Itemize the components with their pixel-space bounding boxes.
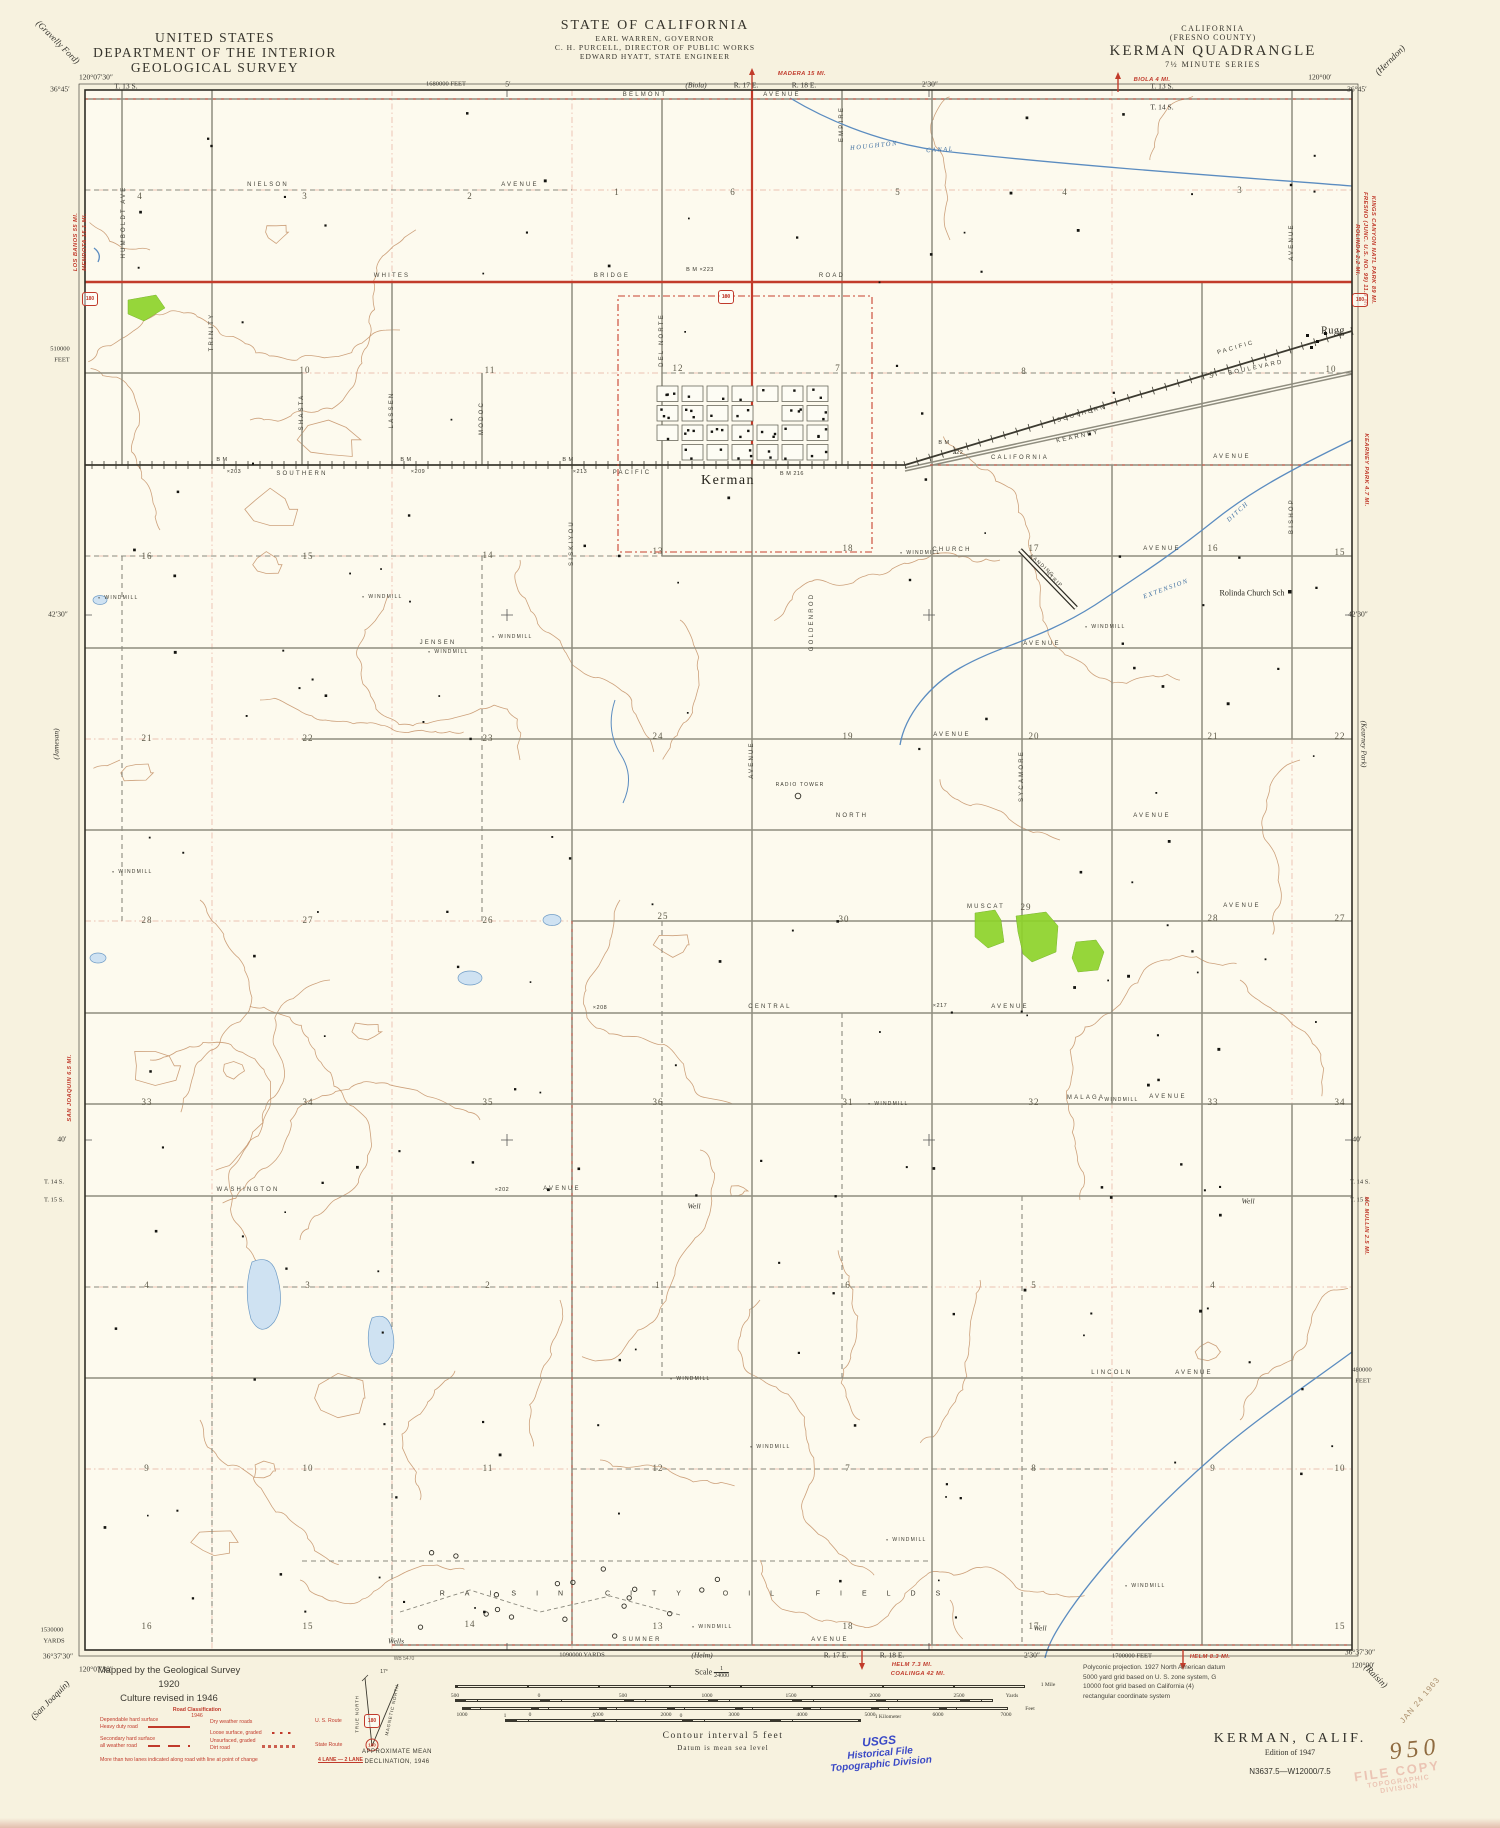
section-number: 25 [658, 911, 669, 921]
section-number: 3 [302, 191, 308, 201]
map-label: AVENUE [1133, 813, 1170, 819]
legend-dry-weather: Dry weather roads [210, 1719, 252, 1725]
section-number: 34 [1335, 1097, 1346, 1107]
map-label: RADIO TOWER [776, 782, 825, 788]
map-sheet: UNITED STATES DEPARTMENT OF THE INTERIOR… [0, 0, 1500, 1828]
map-label: ×202 [495, 1187, 509, 1193]
margin-label: R. 17 E. [734, 81, 759, 90]
section-number: 21 [142, 733, 153, 743]
margin-label: 480000 [1352, 1367, 1372, 1374]
section-number: 15 [303, 1621, 314, 1631]
graticule-crosses [85, 90, 1352, 1650]
legend-unsurfaced: Unsurfaced, graded [210, 1738, 256, 1744]
vegetation-patches [128, 295, 1104, 972]
heading-kerman-quadrangle: KERMAN QUADRANGLE [1110, 43, 1317, 60]
map-label: WASHINGTON [216, 1187, 279, 1193]
map-label: LINCOLN [1091, 1370, 1132, 1376]
margin-label: T. 13 S. [114, 82, 137, 91]
rolinda-church-school-symbol [1288, 590, 1292, 594]
map-label: ∘ WINDMILL [362, 594, 403, 600]
shield-number: 180 [368, 1718, 376, 1724]
section-number: 34 [303, 1097, 314, 1107]
map-label: NIELSON [247, 182, 289, 188]
map-label: ∘ WINDMILL [98, 595, 139, 601]
legend-swatch-heavy-duty [148, 1726, 190, 1728]
map-label: HUMBOLDT AVE [121, 186, 127, 259]
red-dash-roads [85, 99, 1352, 1645]
scale-feet-label: Feet [1025, 1706, 1034, 1712]
margin-label: FEET [1355, 1378, 1371, 1385]
yards-tick: 500 [451, 1693, 459, 1699]
section-number: 8 [1021, 366, 1027, 376]
scale-bar-km [505, 1719, 861, 1722]
datum-note: Datum is mean sea level [677, 1744, 768, 1752]
section-number: 30 [839, 914, 850, 924]
map-label: EMPIRE [839, 106, 845, 142]
section-number: 4 [1210, 1280, 1216, 1290]
margin-label: 510000 [50, 346, 70, 353]
yards-tick: 2000 [870, 1693, 881, 1699]
declination-caption-2: DECLINATION, 1946 [364, 1759, 429, 1765]
section-number: 36 [653, 1097, 664, 1107]
margin-label: 2′30″ [1024, 1651, 1040, 1660]
section-number: 28 [142, 915, 153, 925]
contour-lines [88, 96, 1348, 1639]
map-label: AVENUE [1023, 641, 1060, 647]
map-label: ×213 [573, 469, 587, 475]
section-number: 26 [483, 915, 494, 925]
map-label: MUSCAT [967, 904, 1005, 910]
section-number: 12 [673, 363, 684, 373]
true-north-label: TRUE NORTH [355, 1695, 360, 1732]
map-label: ∘ WINDMILL [750, 1444, 791, 1450]
heading-united-states: UNITED STATES [93, 30, 337, 45]
map-label: AVENUE [1289, 223, 1295, 260]
heading-series: 7½ MINUTE SERIES [1110, 60, 1317, 69]
section-number: 14 [465, 1619, 476, 1629]
destination-note: KINGS CANYON NATL PARK 89 MI. [1370, 196, 1376, 305]
destination-note: LOS BANOS 55 MI. [73, 213, 79, 272]
map-label: Wells [388, 1637, 404, 1646]
map-label: Rolinda Church Sch [1220, 589, 1285, 598]
legend-us-route: U. S. Route [315, 1718, 342, 1724]
heading-state-engineer: EDWARD HYATT, STATE ENGINEER [555, 52, 755, 61]
map-label: Well [1241, 1197, 1254, 1206]
margin-label: 2′30″ [922, 80, 938, 89]
sheet-title: KERMAN, CALIF. [1214, 1731, 1367, 1747]
destination-arrows [749, 68, 1186, 1670]
section-number: 1 [614, 187, 620, 197]
destination-note: MENDOTA 15.1 MI. [82, 213, 88, 271]
map-label: ∘ WINDMILL [428, 649, 469, 655]
section-number: 16 [142, 551, 153, 561]
section-number: 4 [144, 1280, 150, 1290]
creek [1045, 1352, 1352, 1658]
map-label: SISKIYOU [569, 520, 575, 566]
heading-survey: GEOLOGICAL SURVEY [93, 60, 337, 75]
map-label: B M 216 [780, 471, 804, 477]
km-tick: 1 [504, 1713, 507, 1719]
state-route-number: 180 [368, 1743, 376, 1748]
scale-label: Scale 124000 [695, 1666, 729, 1679]
section-number: 2 [485, 1280, 491, 1290]
map-label: ×217 [933, 1003, 947, 1009]
scale-bar-yards [455, 1699, 993, 1702]
section-number: 31 [843, 1097, 854, 1107]
section-number: 9 [1210, 1463, 1216, 1473]
section-number: 11 [483, 1463, 494, 1473]
margin-label: T. 14 S. [44, 1179, 64, 1186]
feet-tick: 7000 [1001, 1712, 1012, 1718]
sheet-reference-number: N3637.5—W12000/7.5 [1249, 1767, 1330, 1776]
map-label: TRINITY [209, 313, 215, 352]
section-number: 27 [1335, 913, 1346, 923]
margin-label: 42′30″ [48, 610, 68, 619]
map-label: ∘ WINDMILL [1098, 1097, 1139, 1103]
map-label: ∘ WINDMILL [1125, 1583, 1166, 1589]
section-number: 2 [467, 191, 473, 201]
feet-tick: 1000 [457, 1712, 468, 1718]
map-label: SOUTHERN [276, 471, 327, 477]
margin-label: (Helm) [691, 1651, 712, 1660]
margin-label: R. 17 E. [824, 1651, 849, 1660]
projection-note-2: 5000 yard grid based on U. S. zone syste… [1083, 1673, 1273, 1683]
section-number: 16 [142, 1621, 153, 1631]
destination-note: HELM 8.3 MI. [1190, 1654, 1231, 1660]
sheet-edition: Edition of 1947 [1265, 1748, 1315, 1757]
map-label: AVENUE [1175, 1370, 1212, 1376]
margin-label: 40′ [57, 1135, 66, 1144]
legend-lanes-note: More than two lanes indicated along road… [100, 1757, 258, 1763]
margin-label: 36°37′30″ [1345, 1648, 1375, 1657]
scale-word: Scale [695, 1667, 712, 1676]
yards-tick: 2500 [954, 1693, 965, 1699]
margin-label: 1530000 [41, 1627, 64, 1634]
map-label: Well [687, 1202, 700, 1211]
map-label: ×203 [227, 469, 241, 475]
section-number: 16 [1208, 543, 1219, 553]
section-number: 15 [303, 551, 314, 561]
margin-label: T. 14 S. [1150, 103, 1173, 112]
heading-department: DEPARTMENT OF THE INTERIOR [93, 45, 337, 60]
map-label: WHITES [374, 273, 411, 279]
map-label: AVENUE [1143, 546, 1180, 552]
map-label: B M [400, 457, 411, 463]
section-number: 23 [483, 733, 494, 743]
section-number: 12 [653, 1463, 664, 1473]
scale-fraction: 124000 [714, 1666, 729, 1679]
margin-label: 1090000 YARDS [559, 1652, 604, 1659]
building-dots [104, 112, 1334, 1618]
section-number: 7 [835, 363, 841, 373]
legend-us-route-shield-icon: 180 [364, 1714, 380, 1728]
map-label: CALIFORNIA [991, 455, 1049, 461]
yards-tick: 1500 [786, 1693, 797, 1699]
section-number: 9 [144, 1463, 150, 1473]
us-route-180-shield-icon: 180 [82, 292, 98, 306]
margin-label: 36°45′ [1347, 85, 1367, 94]
map-label: SHASTA [299, 394, 305, 431]
yards-tick: 500 [619, 1693, 627, 1699]
map-label: AVENUE [749, 741, 755, 778]
destination-note: MC MULLIN 2.5 MI. [1363, 1197, 1369, 1256]
margin-label: 1700000 FEET [1112, 1653, 1152, 1660]
destination-note: MADERA 15 MI. [778, 71, 826, 77]
section-number: 20 [1029, 731, 1040, 741]
margin-label: 5′ [505, 80, 510, 89]
margin-label: 42′30″ [1348, 610, 1368, 619]
map-label: AVENUE [763, 92, 800, 98]
map-label: B M ×223 [686, 267, 714, 273]
map-label: ROAD [819, 273, 845, 279]
margin-label: 40′ [1352, 1135, 1361, 1144]
map-label: JENSEN [420, 640, 457, 646]
section-number: 5 [895, 187, 901, 197]
map-label: ∘ WINDMILL [112, 869, 153, 875]
map-label: BELMONT [623, 92, 667, 98]
map-label: DEL NORTE [659, 313, 665, 367]
map-label: ∘ WINDMILL [692, 1624, 733, 1630]
legend-heavy-duty: Heavy duty road [100, 1724, 138, 1730]
section-number: 10 [1335, 1463, 1346, 1473]
legend-dirt-road: Dirt road [210, 1745, 230, 1751]
map-neatline [85, 90, 1352, 1650]
mapped-by-line: Mapped by the Geological Survey [98, 1665, 241, 1676]
usgs-agency-heading: UNITED STATES DEPARTMENT OF THE INTERIOR… [93, 30, 337, 75]
map-label: AVENUE [811, 1637, 848, 1643]
map-label: RAISIN CITY OIL FIELDS [440, 1591, 961, 1598]
section-number: 3 [305, 1280, 311, 1290]
map-label: AVENUE [543, 1186, 580, 1192]
margin-label: 1680000 FEET [426, 81, 466, 88]
section-number: 33 [142, 1097, 153, 1107]
section-number: 27 [303, 915, 314, 925]
margin-label: FEET [54, 357, 70, 364]
kerman-corporate-boundary [618, 296, 872, 552]
margin-label: WB 5470 [394, 1656, 415, 1662]
declination-angle: 17° [380, 1669, 388, 1675]
heading-governor: EARL WARREN, GOVERNOR [555, 34, 755, 43]
destination-note: FRESNO (JUNC. U.S. NO. 99) 11.9 MI. [1362, 192, 1368, 308]
projection-note-3: 10000 foot grid based on California (4) [1083, 1682, 1273, 1692]
margin-label: T. 14 S. [1350, 1179, 1370, 1186]
us-route-180-shield-icon: 180 [718, 290, 734, 304]
feet-tick: 0 [529, 1712, 532, 1718]
us-route-180-shield-icon: 180 [1352, 293, 1368, 307]
ponds [90, 596, 561, 1365]
scale-bar-miles [455, 1685, 1025, 1688]
scale-yards-label: Yards [1006, 1693, 1019, 1699]
map-label: AVENUE [1213, 454, 1250, 460]
margin-label: YARDS [43, 1638, 64, 1645]
map-label: Rugg [1321, 326, 1345, 337]
map-label: B M [938, 440, 949, 446]
water-features [94, 98, 1352, 1658]
heading-fresno-county: (FRESNO COUNTY) [1110, 33, 1317, 42]
margin-label: 120°07′30″ [79, 73, 113, 82]
section-number: 10 [1326, 364, 1337, 374]
heading-state-of-california: STATE OF CALIFORNIA [555, 18, 755, 34]
map-label: B M [562, 457, 573, 463]
destination-note: SAN JOAQUIN 6.5 MI. [67, 1054, 73, 1121]
section-number: 6 [845, 1280, 851, 1290]
section-number: 6 [730, 187, 736, 197]
section-number: 35 [483, 1097, 494, 1107]
map-label: B M [216, 457, 227, 463]
margin-label: R. 18 E. [880, 1651, 905, 1660]
legend-swatch-secondary [148, 1745, 190, 1747]
heading-california: CALIFORNIA [1110, 24, 1317, 33]
map-label: BISHOP [1289, 498, 1295, 534]
section-number: 19 [843, 731, 854, 741]
map-label: ×208 [593, 1005, 607, 1011]
legend-year: 1946 [191, 1713, 203, 1719]
section-number: 10 [300, 365, 311, 375]
section-number: 18 [843, 1621, 854, 1631]
map-label: ∘ WINDMILL [670, 1376, 711, 1382]
map-label: AVENUE [991, 1004, 1028, 1010]
section-number: 5 [1031, 1280, 1037, 1290]
section-number: 24 [653, 731, 664, 741]
feet-tick: 2000 [661, 1712, 672, 1718]
state-heading: STATE OF CALIFORNIA EARL WARREN, GOVERNO… [555, 18, 755, 61]
declination-caption-1: APPROXIMATE MEAN [362, 1749, 432, 1755]
map-label: ∘ WINDMILL [886, 1537, 927, 1543]
section-number: 13 [653, 546, 664, 556]
section-number: 8 [1031, 1463, 1037, 1473]
section-number: 13 [653, 1621, 664, 1631]
kerman-town-blocks [657, 386, 828, 460]
margin-label: (Biola) [685, 81, 706, 90]
section-number: 15 [1335, 1621, 1346, 1631]
feet-tick: 4000 [797, 1712, 808, 1718]
legend-swatch-loose [272, 1732, 296, 1734]
culture-revised-line: Culture revised in 1946 [120, 1693, 218, 1704]
section-number: 28 [1208, 913, 1219, 923]
map-label: ∘ WINDMILL [1085, 624, 1126, 630]
map-label: PACIFIC [613, 470, 652, 476]
section-number: 17 [1029, 1621, 1040, 1631]
section-number: 22 [1335, 731, 1346, 741]
map-label: ∘ WINDMILL [900, 550, 941, 556]
destination-note: KEARNEY PARK 4.7 MI. [1363, 433, 1369, 506]
feet-tick: 3000 [729, 1712, 740, 1718]
section-number: 4 [1062, 187, 1068, 197]
map-label: LASSEN [389, 392, 395, 429]
map-label: MODOC [479, 401, 485, 435]
section-number: 29 [1021, 902, 1032, 912]
section-number: 21 [1208, 731, 1219, 741]
margin-label: (Kearney Park) [1360, 721, 1369, 768]
section-number: 15 [1335, 547, 1346, 557]
legend-dependable: Dependable hard surface [100, 1717, 158, 1723]
section-number: 7 [845, 1463, 851, 1473]
km-tick: 0 [680, 1713, 683, 1719]
scale-km-label: 1 Kilometer [875, 1714, 901, 1720]
projection-notes: Polyconic projection. 1927 North America… [1083, 1663, 1273, 1701]
map-graphics [0, 0, 1500, 1828]
legend-loose-surface: Loose surface, graded [210, 1730, 262, 1736]
section-number: 3 [1237, 185, 1243, 195]
map-label: SUMNER [622, 1637, 661, 1643]
scale-mile-label: 1 Mile [1041, 1682, 1056, 1688]
heading-public-works: C. H. PURCELL, DIRECTOR OF PUBLIC WORKS [555, 43, 755, 52]
legend-secondary: Secondary hard surface [100, 1736, 155, 1742]
map-label: GOLDENROD [809, 593, 815, 651]
map-label: SYCAMORE [1019, 750, 1025, 802]
km-tick: .5 [591, 1713, 595, 1719]
destination-note: HELM 7.3 MI. [892, 1662, 933, 1668]
road-grid [85, 90, 1352, 1645]
section-number: 22 [303, 733, 314, 743]
landnet-grid [85, 90, 1352, 1650]
section-number: 4 [137, 191, 143, 201]
section-number: 17 [1029, 543, 1040, 553]
map-label: AVENUE [1223, 903, 1260, 909]
section-number: 14 [483, 550, 494, 560]
map-label: ×209 [411, 469, 425, 475]
margin-label: R. 18 E. [792, 81, 817, 90]
map-label: AVENUE [501, 182, 538, 188]
yards-tick: 1000 [702, 1693, 713, 1699]
map-label: 222 [953, 450, 964, 456]
section-number: 33 [1208, 1097, 1219, 1107]
margin-label: 36°45′ [50, 85, 70, 94]
section-number: 10 [303, 1463, 314, 1473]
contour-interval-note: Contour interval 5 feet [663, 1731, 784, 1741]
destination-note: ROLINDA 2.2 MI. [1354, 224, 1360, 276]
margin-label: 36°37′30″ [43, 1652, 73, 1661]
margin-label: (Jamesan) [52, 728, 61, 759]
map-label: Kerman [701, 473, 755, 489]
map-label: NORTH [836, 813, 868, 819]
section-number: 11 [485, 365, 496, 375]
section-number: 32 [1029, 1097, 1040, 1107]
radio-tower-symbol [795, 793, 801, 799]
quadrangle-heading: CALIFORNIA (FRESNO COUNTY) KERMAN QUADRA… [1110, 24, 1317, 69]
section-number: 18 [843, 543, 854, 553]
margin-label: T. 15 S. [44, 1197, 64, 1204]
feet-tick: 6000 [933, 1712, 944, 1718]
section-number: 9 [1209, 370, 1215, 380]
map-outer-border [79, 84, 1358, 1656]
map-label: CENTRAL [748, 1004, 791, 1010]
projection-note-1: Polyconic projection. 1927 North America… [1083, 1663, 1273, 1673]
legend-state-route: State Route [315, 1742, 342, 1748]
section-number: 1 [655, 1280, 661, 1290]
yards-tick: 0 [538, 1693, 541, 1699]
legend-all-weather: all weather road [100, 1743, 137, 1749]
map-label: ∘ WINDMILL [868, 1101, 909, 1107]
map-label: AVENUE [933, 732, 970, 738]
scale-bar-feet [462, 1707, 1008, 1710]
margin-label: 120°00′ [1308, 73, 1331, 82]
legend-lanes-values: 4 LANE — 2 LANE [318, 1757, 363, 1763]
legend-swatch-dirt [262, 1745, 296, 1748]
map-label: CANAL [926, 146, 954, 154]
destination-note: COALINGA 42 MI. [891, 1671, 945, 1677]
mapped-by-year: 1920 [158, 1679, 179, 1690]
map-label: AVENUE [1149, 1094, 1186, 1100]
destination-note: BIOLA 4 MI. [1134, 77, 1171, 83]
map-label: BRIDGE [594, 273, 630, 279]
map-label: ∘ WINDMILL [492, 634, 533, 640]
projection-note-4: rectangular coordinate system [1083, 1692, 1273, 1702]
